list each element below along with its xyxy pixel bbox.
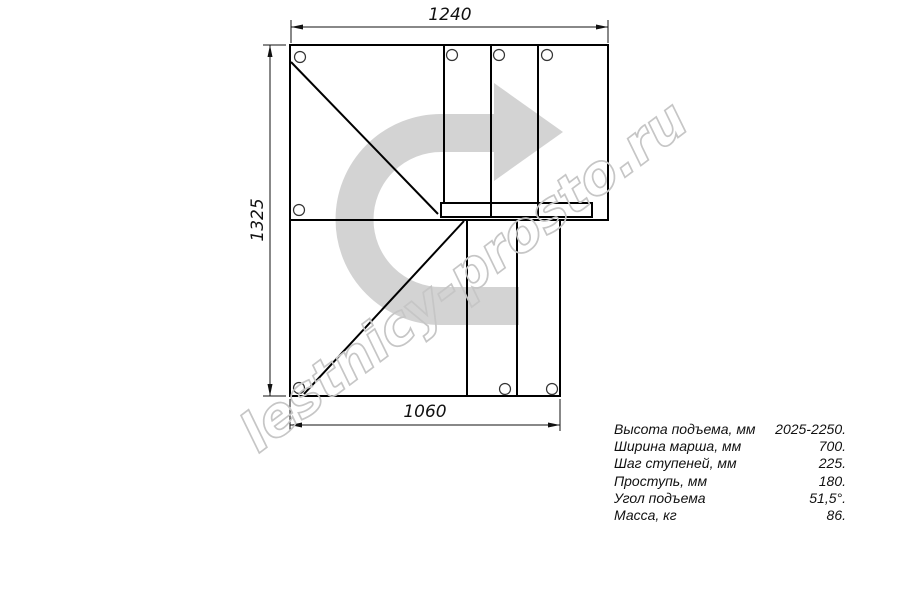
specs-table: Высота подъема, мм2025-2250.Ширина марша…: [614, 421, 846, 524]
hole: [294, 205, 305, 216]
hole: [542, 50, 553, 61]
spec-label: Масса, кг: [614, 507, 677, 524]
spec-row: Шаг ступеней, мм225.: [614, 455, 846, 472]
hole: [295, 52, 306, 63]
spec-value: 51,5°.: [809, 490, 846, 507]
hole: [447, 50, 458, 61]
spec-row: Высота подъема, мм2025-2250.: [614, 421, 846, 438]
dim-bottom-label: 1060: [403, 402, 446, 422]
spec-label: Шаг ступеней, мм: [614, 455, 737, 472]
spec-label: Проступь, мм: [614, 473, 707, 490]
staircase-drawing-page: 1240 1325 1060 lestnicy-prosto.ru Высота…: [0, 0, 900, 600]
spec-label: Высота подъема, мм: [614, 421, 756, 438]
spec-row: Проступь, мм180.: [614, 473, 846, 490]
spec-value: 2025-2250.: [775, 421, 846, 438]
spec-value: 225.: [819, 455, 846, 472]
dim-left-label: 1325: [248, 198, 268, 241]
spec-value: 700.: [819, 438, 846, 455]
spec-row: Угол подъема51,5°.: [614, 490, 846, 507]
hole: [494, 50, 505, 61]
spec-row: Ширина марша, мм700.: [614, 438, 846, 455]
spec-value: 180.: [819, 473, 846, 490]
direction-arrow-head: [494, 83, 563, 181]
hole: [500, 384, 511, 395]
dim-top-label: 1240: [428, 5, 471, 25]
spec-label: Ширина марша, мм: [614, 438, 741, 455]
spec-value: 86.: [827, 507, 846, 524]
spec-row: Масса, кг86.: [614, 507, 846, 524]
hole: [547, 384, 558, 395]
spec-label: Угол подъема: [614, 490, 706, 507]
